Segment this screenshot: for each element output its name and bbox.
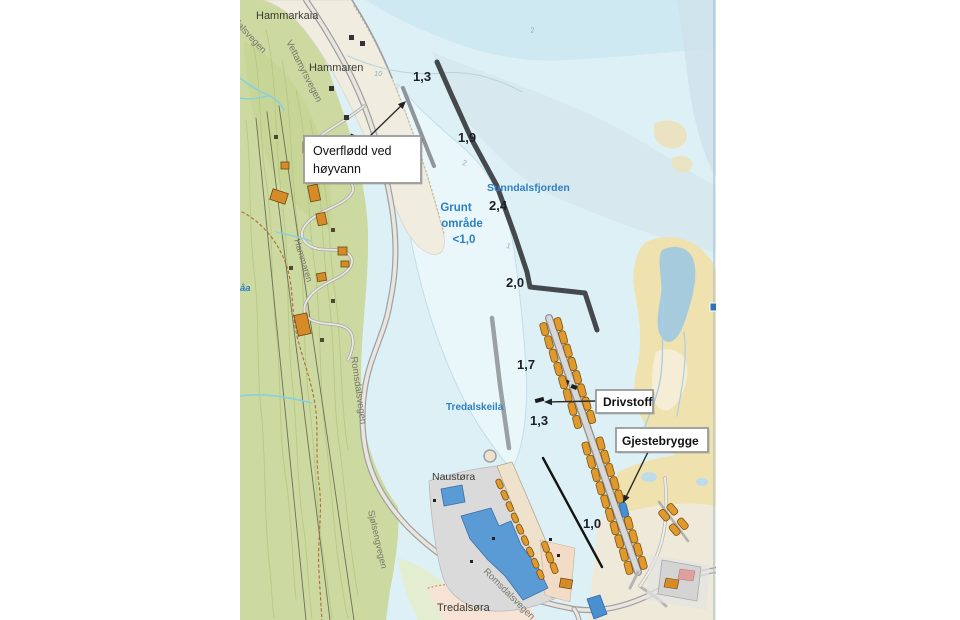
label-water: Tredalskeila bbox=[446, 402, 504, 413]
label-contour: 10 bbox=[374, 69, 383, 78]
building-red-right bbox=[678, 569, 695, 581]
label-depth: 1,7 bbox=[517, 357, 535, 372]
dock-marker bbox=[349, 35, 354, 40]
building bbox=[281, 162, 289, 169]
building bbox=[316, 272, 326, 281]
label-place: Tredalsøra bbox=[437, 602, 491, 614]
label-water: Sunndalsfjorden bbox=[487, 182, 570, 194]
hill-shed bbox=[331, 228, 335, 232]
callout-overflodd-text: høyvann bbox=[313, 162, 361, 176]
pier-round-head bbox=[484, 450, 496, 462]
label-water: <1,0 bbox=[453, 234, 476, 246]
building-orange-right bbox=[664, 578, 679, 589]
hill-shed bbox=[274, 135, 278, 139]
label-depth: 1,3 bbox=[413, 69, 431, 84]
pole-marker bbox=[492, 537, 495, 540]
harbor-map: SunndalsfjordenGruntområde<1,0Tredalskei… bbox=[240, 0, 716, 620]
hill-shed bbox=[289, 266, 293, 270]
building-grey-right bbox=[658, 560, 701, 601]
label-depth: 1,0 bbox=[583, 516, 601, 531]
dock-marker bbox=[344, 115, 349, 120]
label-depth: 1,3 bbox=[530, 413, 548, 428]
building-blue-small bbox=[441, 485, 465, 506]
label-place: Naustøra bbox=[432, 471, 475, 483]
pond-1 bbox=[641, 472, 657, 482]
label-water: åa bbox=[240, 283, 251, 294]
dock-dot bbox=[549, 538, 552, 541]
label-place: Hammaren bbox=[309, 62, 363, 74]
label-water: Grunt bbox=[440, 202, 471, 214]
label-depth: 1,9 bbox=[458, 130, 476, 145]
callout-overflodd-text: Overflødd ved bbox=[313, 144, 392, 158]
building bbox=[316, 212, 327, 226]
pole-marker bbox=[470, 560, 473, 563]
document-canvas: SunndalsfjordenGruntområde<1,0Tredalskei… bbox=[0, 0, 960, 620]
pole-marker bbox=[433, 499, 436, 502]
building bbox=[559, 578, 572, 589]
hill-shed bbox=[320, 338, 324, 342]
dock-marker bbox=[360, 41, 365, 46]
label-depth: 2,4 bbox=[489, 198, 508, 213]
callout-drivstoff-leader bbox=[549, 401, 596, 402]
label-place: Hammarkaia bbox=[256, 10, 319, 22]
callout-gjestebrygge-text: Gjestebrygge bbox=[622, 434, 699, 448]
dock-dot bbox=[557, 554, 560, 557]
label-depth: 2,0 bbox=[506, 275, 524, 290]
dock-marker bbox=[329, 86, 334, 91]
label-water: område bbox=[441, 218, 483, 230]
callout-drivstoff-text: Drivstoff bbox=[603, 395, 653, 409]
building bbox=[341, 261, 349, 267]
building bbox=[338, 247, 347, 255]
pond-2 bbox=[696, 478, 708, 486]
hill-shed bbox=[331, 299, 335, 303]
selection-handle[interactable] bbox=[710, 303, 716, 311]
